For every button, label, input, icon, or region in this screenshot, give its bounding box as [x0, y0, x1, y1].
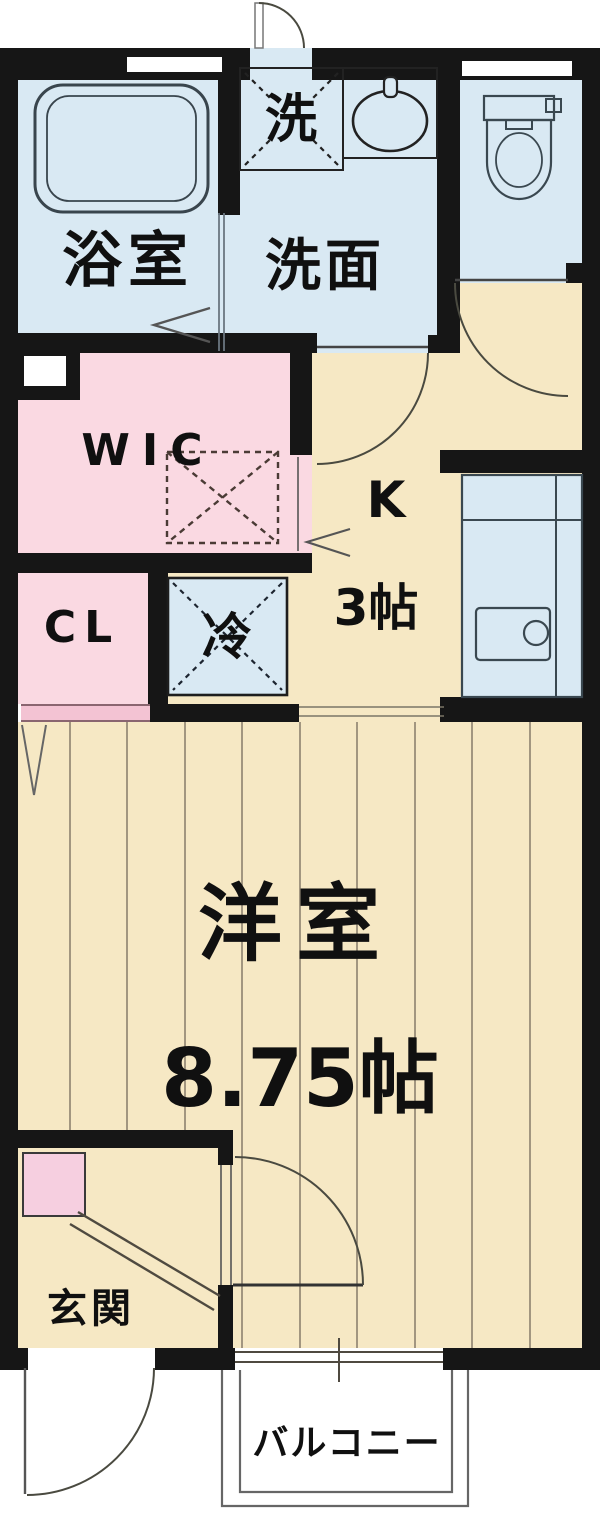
washroom-label: 洗面	[265, 239, 385, 295]
kitchen-room-threshold	[299, 707, 444, 716]
kitchen-size-label: 3帖	[334, 583, 419, 633]
bath-folding-door-icon	[154, 308, 210, 342]
wic-label: WIC	[81, 429, 214, 473]
bath-partition-glass	[219, 213, 224, 351]
wic-door-marker-icon	[307, 529, 350, 556]
room-doorway-jambs	[221, 1165, 231, 1285]
washroom-top-door	[255, 3, 304, 48]
kitchen-counter-icon	[462, 475, 582, 697]
sink-icon	[343, 68, 437, 158]
entrance-door	[25, 1368, 154, 1495]
fridge-label: 冷	[202, 612, 252, 662]
bathroom-label: 浴室	[62, 231, 194, 291]
laundry-pan-label: 洗	[265, 94, 317, 146]
entrance-label: 玄関	[47, 1289, 135, 1329]
balcony-window	[235, 1338, 443, 1382]
toilet-icon	[484, 96, 561, 199]
bathtub-icon	[35, 85, 208, 212]
balcony-label: バルコニー	[252, 1426, 441, 1462]
room-door	[233, 1157, 363, 1285]
floor-plan: 浴室 洗 洗面 WIC CL 冷 K 3帖 洋室 8.75帖 玄関 バルコニー	[0, 0, 600, 1515]
closet-door-marker-icon	[22, 725, 46, 795]
toilet-door	[455, 280, 568, 396]
closet-label: CL	[44, 606, 120, 650]
kitchen-label: K	[367, 475, 406, 525]
washroom-door	[317, 347, 428, 464]
western-room-label: 洋室	[198, 882, 394, 966]
western-room-size-label: 8.75帖	[161, 1039, 438, 1119]
